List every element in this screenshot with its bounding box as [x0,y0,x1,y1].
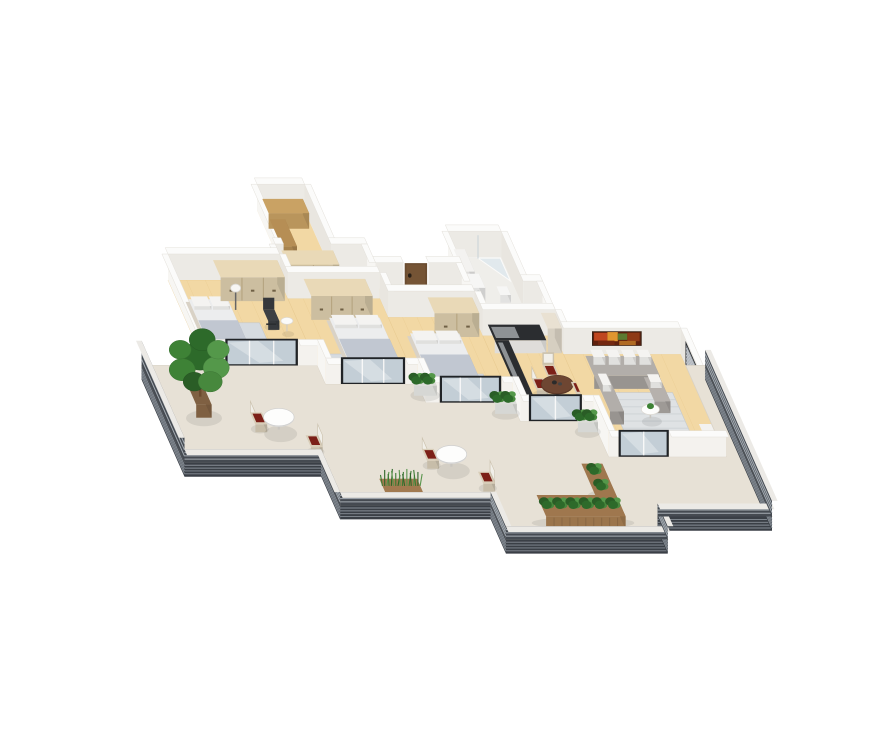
apartment-3d-floorplan-render [0,0,896,756]
wall-artwork [592,331,642,346]
railing [184,449,323,462]
kitchen-counter-back [488,325,547,354]
wall-artwork [592,331,642,346]
planter-L-long [532,495,635,529]
railing [506,526,670,539]
railing [658,504,775,517]
bedroom-2-glass-door [341,357,405,384]
wardrobe [304,279,373,320]
wardrobe [213,260,285,301]
kitchen-dining-glass-door [529,394,582,421]
railing [340,492,493,505]
living-room-glass-door [619,430,669,457]
floorplan-scene [0,0,896,756]
bedroom-1-glass-door [225,339,298,366]
